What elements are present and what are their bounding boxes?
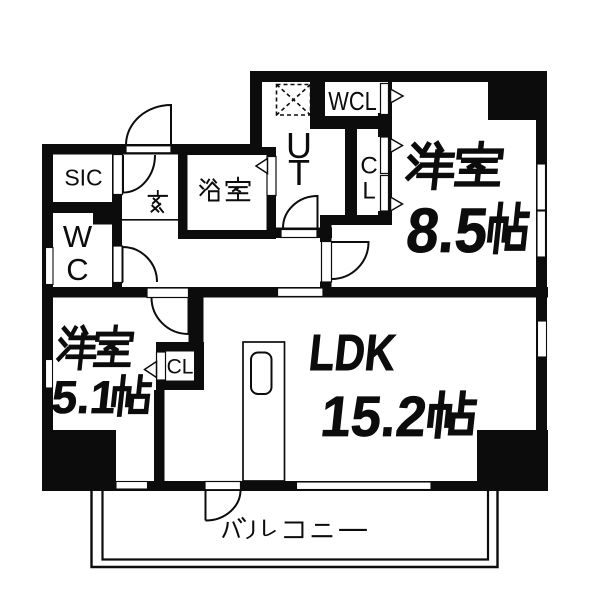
- svg-text:SIC: SIC: [64, 165, 102, 191]
- svg-text:L: L: [362, 178, 375, 205]
- svg-text:C: C: [66, 252, 88, 287]
- svg-text:5.1: 5.1: [49, 371, 118, 423]
- svg-text:T: T: [288, 152, 310, 193]
- svg-text:LDK: LDK: [306, 324, 398, 381]
- svg-text:C: C: [360, 153, 377, 180]
- svg-text:8.5: 8.5: [403, 195, 491, 266]
- svg-text:CL: CL: [167, 356, 194, 379]
- svg-text:WCL: WCL: [328, 87, 377, 116]
- svg-text:W: W: [63, 219, 93, 254]
- svg-text:15.2: 15.2: [318, 385, 430, 448]
